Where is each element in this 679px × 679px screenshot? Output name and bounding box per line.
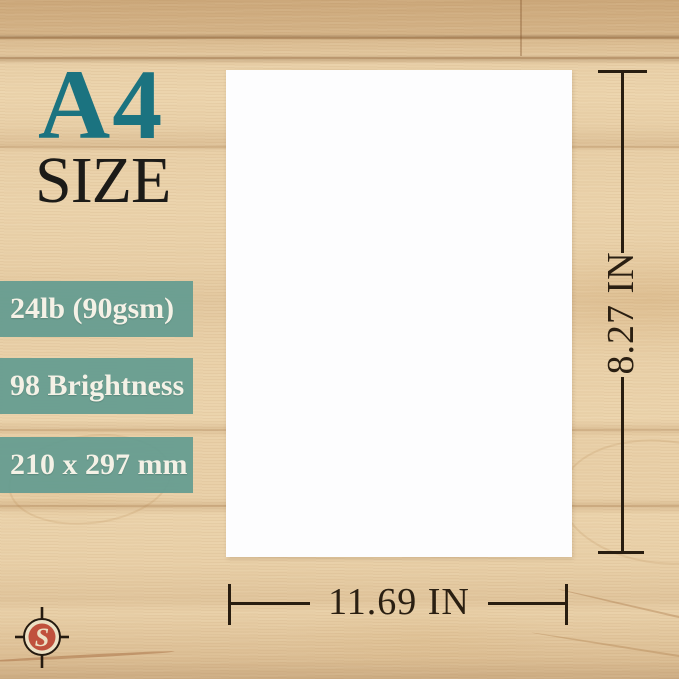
width-dimension-line-left: [230, 602, 310, 605]
logo-monogram: S: [35, 623, 49, 652]
grain-streak: [531, 632, 679, 675]
spec-badge-weight: 24lb (90gsm): [0, 281, 193, 337]
page-title: A4: [38, 55, 164, 155]
height-dimension-line-lower: [621, 377, 624, 553]
spec-badge-brightness: 98 Brightness: [0, 358, 193, 414]
width-dimension-label: 11.69 IN: [328, 580, 470, 624]
plank-seam-vertical: [520, 0, 522, 56]
height-dimension-label: 8.27 IN: [599, 251, 643, 374]
plank-seam: [0, 37, 679, 39]
product-infographic: A4 SIZE 24lb (90gsm) 98 Brightness 210 x…: [0, 0, 679, 679]
grain-streak: [558, 588, 679, 642]
height-dimension-line-upper: [621, 72, 624, 253]
width-dimension-line-right: [488, 602, 568, 605]
spec-badge-dimensions: 210 x 297 mm: [0, 437, 193, 493]
width-dimension-tick-right: [565, 584, 568, 625]
paper-sheet: [226, 70, 572, 557]
brand-logo: S: [12, 604, 72, 672]
height-dimension-tick-bottom: [598, 551, 644, 554]
page-subtitle: SIZE: [35, 148, 170, 214]
